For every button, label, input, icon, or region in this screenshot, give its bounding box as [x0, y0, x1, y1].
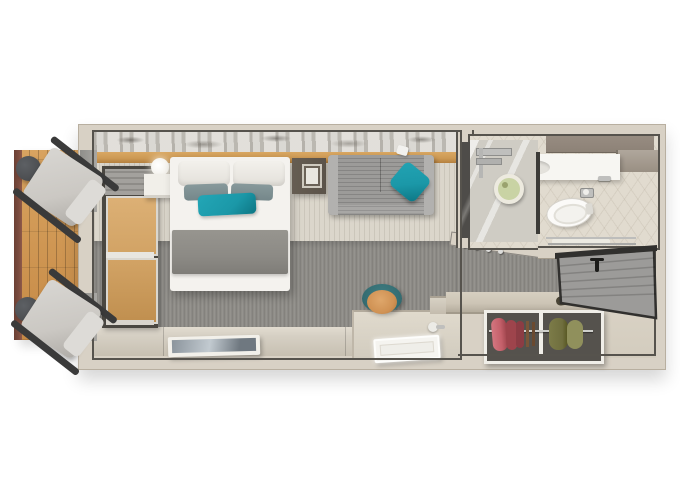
- tray-inner-line: [380, 341, 435, 356]
- garment-olive-2: [567, 320, 583, 349]
- hanger-2: [532, 322, 535, 346]
- bathroom-floor: [468, 134, 660, 250]
- sofa-seat-edge: [338, 205, 424, 213]
- tv-panel: [168, 335, 260, 357]
- bathroom-wall-shelf: [616, 150, 658, 172]
- mirror-panel: [460, 142, 470, 238]
- bed-pillow-left: [178, 161, 230, 186]
- shower-head: [494, 174, 524, 204]
- entry-right-line: [654, 248, 656, 356]
- tv-screen: [172, 338, 256, 353]
- hair-dryer-nozzle: [436, 325, 445, 329]
- shower-glass-divider: [536, 152, 540, 234]
- window-glass-upper: [106, 196, 158, 256]
- bathroom-lower-wall: [538, 246, 656, 259]
- bed-pillow-right: [233, 161, 285, 186]
- bed-accent-pillow-teal: [197, 192, 256, 216]
- shower-head-center: [502, 182, 508, 188]
- hanger-1: [526, 321, 529, 347]
- corridor-bottom-line: [458, 354, 656, 356]
- floor-ledge-seam-right: [345, 327, 346, 356]
- stool-orange-seat: [367, 290, 397, 314]
- garment-olive-1: [549, 318, 568, 350]
- wardrobe-divider: [539, 313, 543, 355]
- floor-ledge-seam-left: [163, 327, 164, 356]
- toilet-hinge: [585, 203, 593, 215]
- garment-red-3: [516, 321, 524, 348]
- bed-blanket-gray: [172, 230, 288, 274]
- faucet: [598, 176, 611, 181]
- nightstand-right: [292, 158, 326, 194]
- towel-rack-bar-inner: [548, 243, 636, 245]
- stateroom-floorplan-render: [0, 0, 680, 482]
- toilet-paper-roll: [583, 189, 589, 195]
- double-bed: [170, 157, 290, 291]
- nightstand-framed-art: [302, 164, 322, 188]
- sofa-back-divider: [380, 158, 381, 192]
- sofa-arm-left: [328, 155, 338, 215]
- shower-mixer-handle: [476, 158, 502, 165]
- shoe-right: [574, 296, 591, 307]
- desk-led-tray: [373, 335, 441, 364]
